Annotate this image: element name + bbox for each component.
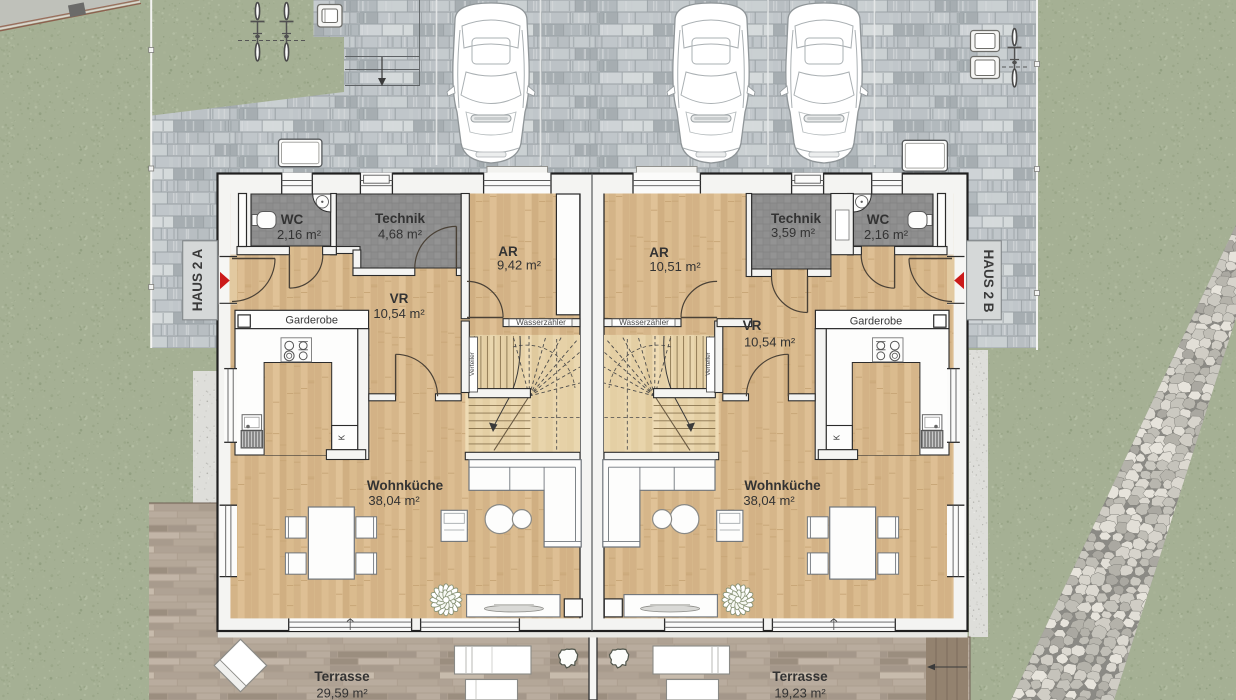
svg-text:Wasserzähler: Wasserzähler [619,318,669,327]
svg-text:2,16 m²: 2,16 m² [277,227,322,242]
svg-text:K: K [832,434,841,440]
svg-text:Verteiler: Verteiler [469,351,476,376]
svg-text:K: K [338,434,347,440]
svg-text:AR: AR [649,245,669,260]
svg-text:Garderobe: Garderobe [285,315,338,327]
svg-text:Wasserzähler: Wasserzähler [516,318,566,327]
svg-text:2,16 m²: 2,16 m² [864,227,909,242]
svg-text:VR: VR [743,318,762,333]
svg-text:Wohnküche: Wohnküche [367,478,444,493]
svg-text:9,42 m²: 9,42 m² [497,258,542,273]
svg-text:VR: VR [390,291,409,306]
svg-text:Verteiler: Verteiler [705,351,712,376]
svg-text:WC: WC [281,212,304,227]
svg-text:Technik: Technik [375,211,426,226]
svg-text:HAUS 2 B: HAUS 2 B [981,249,996,312]
svg-text:WC: WC [867,212,890,227]
svg-text:Technik: Technik [771,211,822,226]
svg-text:4,68 m²: 4,68 m² [378,227,423,242]
svg-text:10,54 m²: 10,54 m² [744,335,796,350]
svg-text:38,04 m²: 38,04 m² [743,493,795,508]
svg-text:Terrasse: Terrasse [314,669,370,684]
svg-text:Garderobe: Garderobe [850,316,903,328]
svg-text:10,51 m²: 10,51 m² [649,259,701,274]
svg-text:29,59 m²: 29,59 m² [316,686,368,700]
svg-text:Wohnküche: Wohnküche [744,478,821,493]
svg-text:19,23 m²: 19,23 m² [774,686,826,700]
svg-text:10,54 m²: 10,54 m² [373,306,425,321]
svg-text:Terrasse: Terrasse [772,669,828,684]
svg-text:38,04 m²: 38,04 m² [368,493,420,508]
svg-text:3,59 m²: 3,59 m² [771,225,816,240]
svg-text:HAUS 2 A: HAUS 2 A [190,248,205,311]
